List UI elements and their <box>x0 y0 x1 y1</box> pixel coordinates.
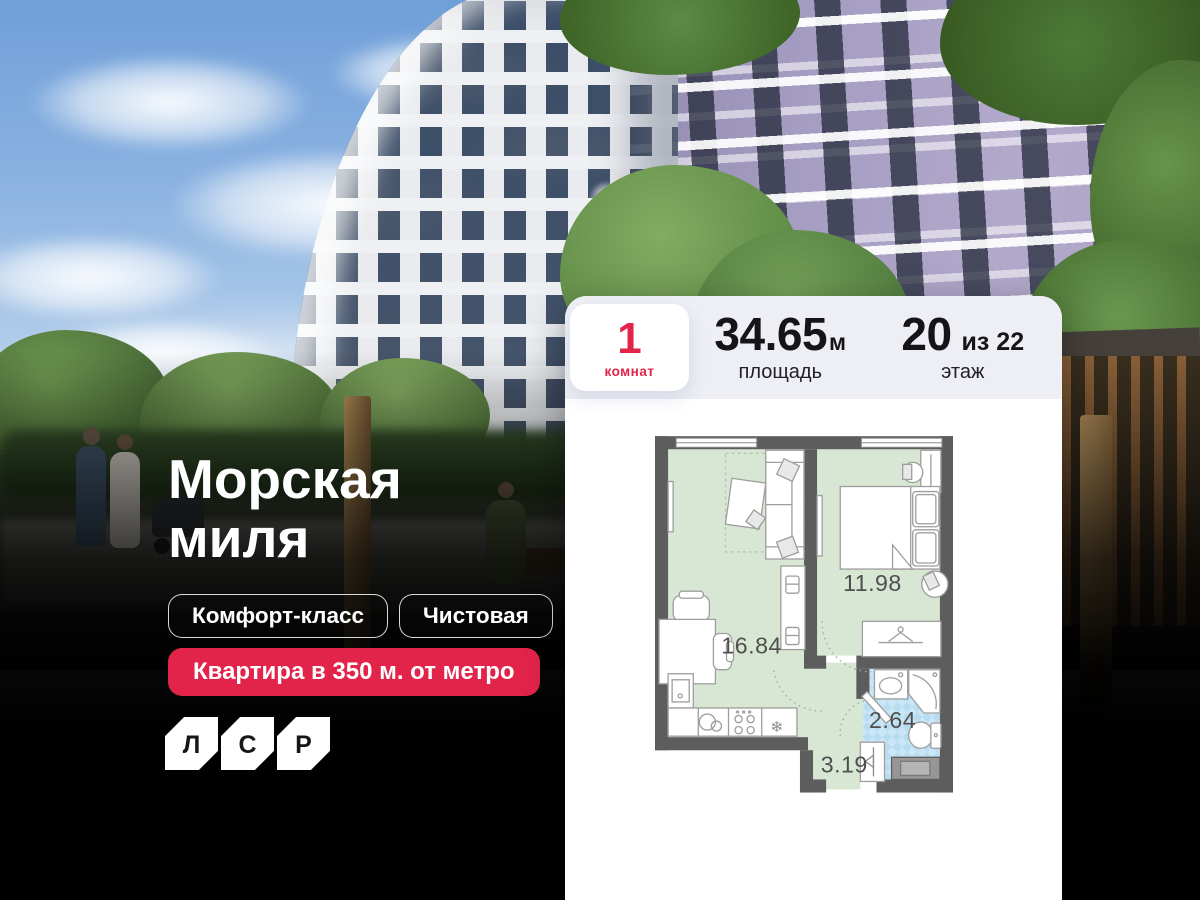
floor-of-total: из 22 <box>962 328 1025 357</box>
metro-distance-badge: Квартира в 350 м. от метро <box>168 648 540 696</box>
lsr-logo: Л С Р <box>165 717 330 770</box>
pillow <box>913 530 939 566</box>
project-title-line2: миля <box>168 509 402 568</box>
floor-value: 20 <box>901 311 951 357</box>
project-title: Морская миля <box>168 450 402 568</box>
logo-tile-s: С <box>221 717 274 770</box>
apartment-card: 1 комнат 34.65 м площадь 20 из 22 этаж <box>565 296 1062 900</box>
area-stat: 34.65 м площадь <box>689 311 872 384</box>
floor-plan: 16.84 11.98 2.64 3.19 ❄ <box>653 428 955 846</box>
apartment-stats-header: 1 комнат 34.65 м площадь 20 из 22 этаж <box>565 296 1062 399</box>
radiator <box>817 496 822 556</box>
tag-finishing: Чистовая <box>399 594 553 638</box>
tag-comfort-class: Комфорт-класс <box>168 594 388 638</box>
area-unit: м <box>829 329 846 356</box>
logo-tile-r: Р <box>277 717 330 770</box>
area-label: площадь <box>738 361 822 384</box>
logo-tile-l: Л <box>165 717 218 770</box>
pillow <box>913 492 939 527</box>
fridge-icon: ❄ <box>770 719 783 736</box>
rooms-chip: 1 комнат <box>570 304 689 391</box>
plan-entry-floor <box>822 779 860 789</box>
floor-stat: 20 из 22 этаж <box>872 311 1055 384</box>
radiator <box>668 481 673 531</box>
chair <box>673 595 709 621</box>
living-area-label: 16.84 <box>721 633 781 659</box>
floor-label: этаж <box>941 361 984 384</box>
bedroom-area-label: 11.98 <box>843 570 902 596</box>
area-value: 34.65 <box>714 311 827 357</box>
tag-row: Комфорт-класс Чистовая <box>168 594 553 638</box>
promo-banner: Морская миля Комфорт-класс Чистовая Квар… <box>0 0 1200 900</box>
rooms-label: комнат <box>605 364 655 379</box>
rooms-count: 1 <box>617 317 641 361</box>
hallway-area-label: 3.19 <box>821 751 868 777</box>
project-title-line1: Морская <box>168 450 402 509</box>
toilet-tank <box>931 723 941 748</box>
bathroom-area-label: 2.64 <box>869 707 916 733</box>
